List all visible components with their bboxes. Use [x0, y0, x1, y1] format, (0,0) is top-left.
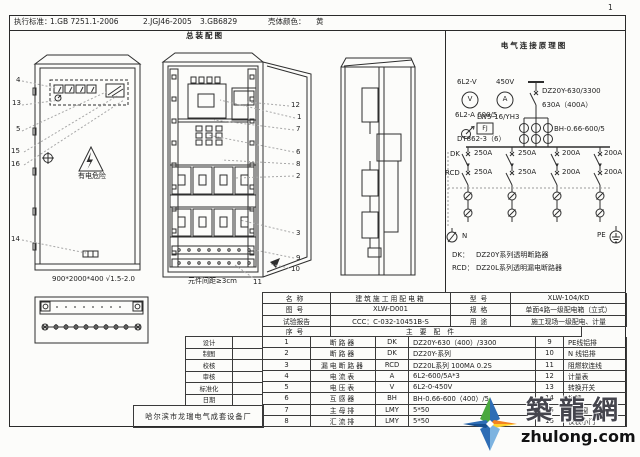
- part-no: 2: [263, 348, 311, 359]
- parts-header: 主要配件: [286, 326, 582, 337]
- part-name: 主母排: [311, 405, 376, 416]
- spec-table-header: 名称 建筑施工用配电箱 型号 XLW-104/KD 图号 XLW-D001 规格…: [262, 292, 626, 327]
- callout-15: 15: [11, 148, 20, 156]
- callout-12: 12: [291, 102, 300, 110]
- part-code: V: [376, 382, 409, 393]
- standard-2: 2.JGJ46-2005: [143, 18, 192, 26]
- model-label: 型号: [451, 293, 511, 304]
- drawing-no-label: 图号: [263, 304, 331, 315]
- part-no: 5: [263, 382, 311, 393]
- shell-color-value: 黄: [316, 18, 324, 26]
- title-block-value-cell: [233, 360, 263, 372]
- callout-16: 16: [11, 161, 20, 169]
- part-code: LMY: [376, 405, 409, 416]
- factory-name: 哈尔滨市龙瑞电气成套设备厂: [133, 405, 264, 428]
- part-name: 计量表: [564, 371, 627, 382]
- part-name: PE线铝排: [564, 337, 627, 348]
- callout-8: 8: [296, 161, 300, 169]
- page-number: 1: [608, 4, 613, 12]
- part-spec: DZ20Y-630（400）/3300: [409, 337, 536, 348]
- part-code: DK: [376, 337, 409, 348]
- header-rule: [9, 30, 625, 31]
- part-name: 互感器: [311, 393, 376, 404]
- legend-dk-value: DZ20Y系列透明断路器: [476, 252, 548, 260]
- front-view-dimension: 900*2000*400 √1.5-2.0: [52, 276, 135, 284]
- part-code: BH: [376, 393, 409, 404]
- watermark-domain: zhulong.com: [521, 429, 636, 445]
- part-name: 阻燃软连线: [564, 360, 627, 371]
- part-no: 6: [263, 393, 311, 404]
- rcd-rating-2: 250A: [518, 169, 536, 177]
- spec-value: 单面4路一级配电箱（立式）: [511, 304, 627, 315]
- dk-rating-1: 250A: [474, 150, 492, 158]
- part-spec: 6L2-0-450V: [409, 382, 536, 393]
- shell-color-label: 壳体颜色：: [268, 18, 306, 26]
- title-block-label: 制图: [186, 349, 233, 361]
- part-no: 1: [263, 337, 311, 348]
- part-code: A: [376, 371, 409, 382]
- ammeter-symbol: A: [500, 96, 510, 104]
- title-block-label: 设计: [186, 337, 233, 349]
- rcd-rating-4: 200A: [604, 169, 622, 177]
- section-divider: [445, 30, 446, 292]
- part-name: 断路器: [311, 337, 376, 348]
- legend-rcd-value: DZ20L系列透明漏电断路器: [476, 265, 562, 273]
- energy-meter-model: DT862-3（6）: [457, 136, 505, 144]
- part-name: 断路器: [311, 348, 376, 359]
- standard-3: 3.GB6829: [200, 18, 237, 26]
- schematic-title: 电气连接原理图: [478, 42, 590, 50]
- voltmeter-model: 6L2-V: [457, 79, 477, 87]
- title-block-label: 标准化: [186, 383, 233, 395]
- part-name: 电压表: [311, 382, 376, 393]
- name-label: 名称: [263, 293, 331, 304]
- rcd-row-label: RCD: [445, 170, 460, 178]
- part-name: N 线铝排: [564, 348, 627, 359]
- rcd-rating-1: 250A: [474, 169, 492, 177]
- name-value: 建筑施工用配电箱: [331, 293, 451, 304]
- spacing-note: 元件间距≥3cm: [188, 278, 237, 286]
- part-name: 转换开关: [564, 382, 627, 393]
- standards-label: 执行标准：: [14, 18, 52, 26]
- part-no: 13: [536, 382, 564, 393]
- part-no: 3: [263, 360, 311, 371]
- callout-5: 5: [16, 126, 20, 134]
- part-no: 10: [536, 348, 564, 359]
- title-block: 设计 制图 校核 审核 标准化 日期: [185, 336, 262, 406]
- voltmeter-symbol: V: [465, 96, 475, 104]
- callout-9: 9: [296, 255, 300, 263]
- dk-rating-3: 200A: [562, 150, 580, 158]
- title-block-label: 校核: [186, 360, 233, 372]
- spec-label: 规格: [451, 304, 511, 315]
- standard-1: 1.GB 7251.1-2006: [50, 18, 119, 26]
- title-block-value-cell: [233, 337, 263, 349]
- callout-4: 4: [16, 77, 20, 85]
- part-spec: DZ20L系列 100MA 0.2S: [409, 360, 536, 371]
- fj-label: FJ: [477, 126, 493, 133]
- part-code: RCD: [376, 360, 409, 371]
- main-breaker-rating: 630A（400A）: [542, 102, 592, 110]
- callout-11: 11: [253, 279, 262, 287]
- title-block-value-cell: [233, 383, 263, 395]
- pe-label: PE: [597, 232, 606, 240]
- part-no: 8: [263, 416, 311, 427]
- callout-2: 2: [296, 173, 300, 181]
- callout-13: 13: [12, 100, 21, 108]
- part-code: DK: [376, 348, 409, 359]
- main-breaker-model: DZ20Y-630/3300: [542, 88, 601, 96]
- part-name: 电流表: [311, 371, 376, 382]
- callout-7: 7: [296, 126, 300, 134]
- watermark-brand: 築龍網: [526, 398, 625, 424]
- changeover-switch-model: LW5-16/YH3: [477, 114, 519, 122]
- ct-model: BH-0.66-600/5: [554, 126, 605, 134]
- part-code: LMY: [376, 416, 409, 427]
- part-name: 汇流排: [311, 416, 376, 427]
- part-no: 9: [536, 337, 564, 348]
- title-block-value-cell: [233, 372, 263, 384]
- title-block-value-cell: [233, 349, 263, 361]
- legend-rcd-key: RCD：: [452, 265, 474, 273]
- zhulong-logo-icon: [450, 393, 535, 457]
- title-block-label: 审核: [186, 372, 233, 384]
- part-name: 漏电断路器: [311, 360, 376, 371]
- spec-table-subheader: 序号 主要配件: [262, 326, 626, 337]
- n-label: N: [462, 233, 467, 241]
- part-spec: DZ20Y-系列: [409, 348, 536, 359]
- part-no: 7: [263, 405, 311, 416]
- callout-1: 1: [297, 114, 301, 122]
- callout-14: 14: [11, 236, 20, 244]
- dk-rating-4: 200A: [604, 150, 622, 158]
- rcd-rating-3: 200A: [562, 169, 580, 177]
- model-value: XLW-104/KD: [511, 293, 627, 304]
- warning-text: 有电危险: [74, 173, 110, 181]
- part-no: 4: [263, 371, 311, 382]
- dk-row-label: DK: [450, 151, 460, 159]
- part-no: 11: [536, 360, 564, 371]
- callout-10: 10: [291, 266, 300, 274]
- dk-rating-2: 250A: [518, 150, 536, 158]
- legend-dk-key: DK：: [452, 252, 469, 260]
- voltage-rating: 450V: [496, 79, 514, 87]
- callout-6: 6: [296, 149, 300, 157]
- part-spec: 6L2-600/5A*3: [409, 371, 536, 382]
- assembly-title: 总装配图: [186, 32, 224, 40]
- drawing-no-value: XLW-D001: [331, 304, 451, 315]
- part-no: 12: [536, 371, 564, 382]
- callout-3: 3: [296, 230, 300, 238]
- drawing-sheet: 1 执行标准： 1.GB 7251.1-2006 2.JGJ46-2005 3.…: [0, 0, 640, 457]
